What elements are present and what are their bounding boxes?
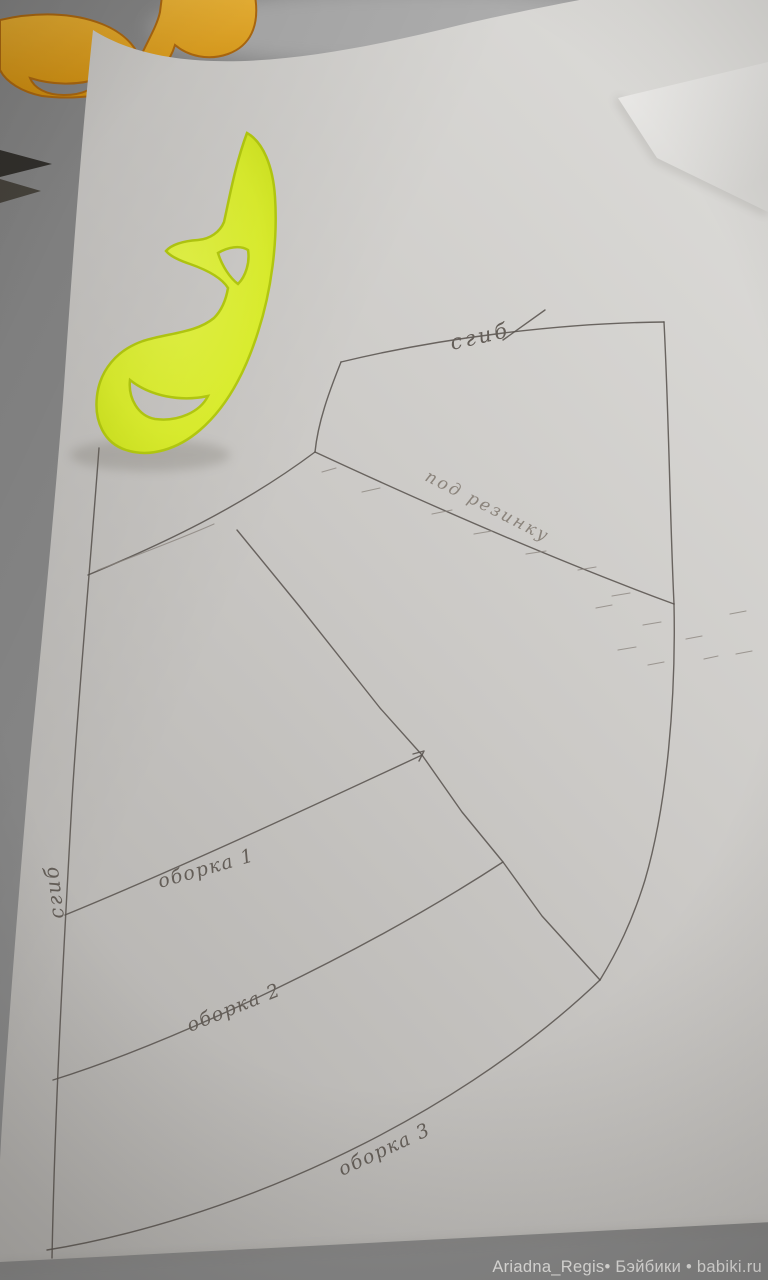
dark-tool-tips [0,150,52,203]
watermark: Ariadna_Regis• Бэйбики • babiki.ru [492,1258,762,1276]
pattern-sheet [0,0,768,1262]
scene: сгиб под резинку оборка 1 оборка 2 оборк… [0,0,768,1280]
photo-of-sewing-pattern: сгиб под резинку оборка 1 оборка 2 оборк… [0,0,768,1280]
